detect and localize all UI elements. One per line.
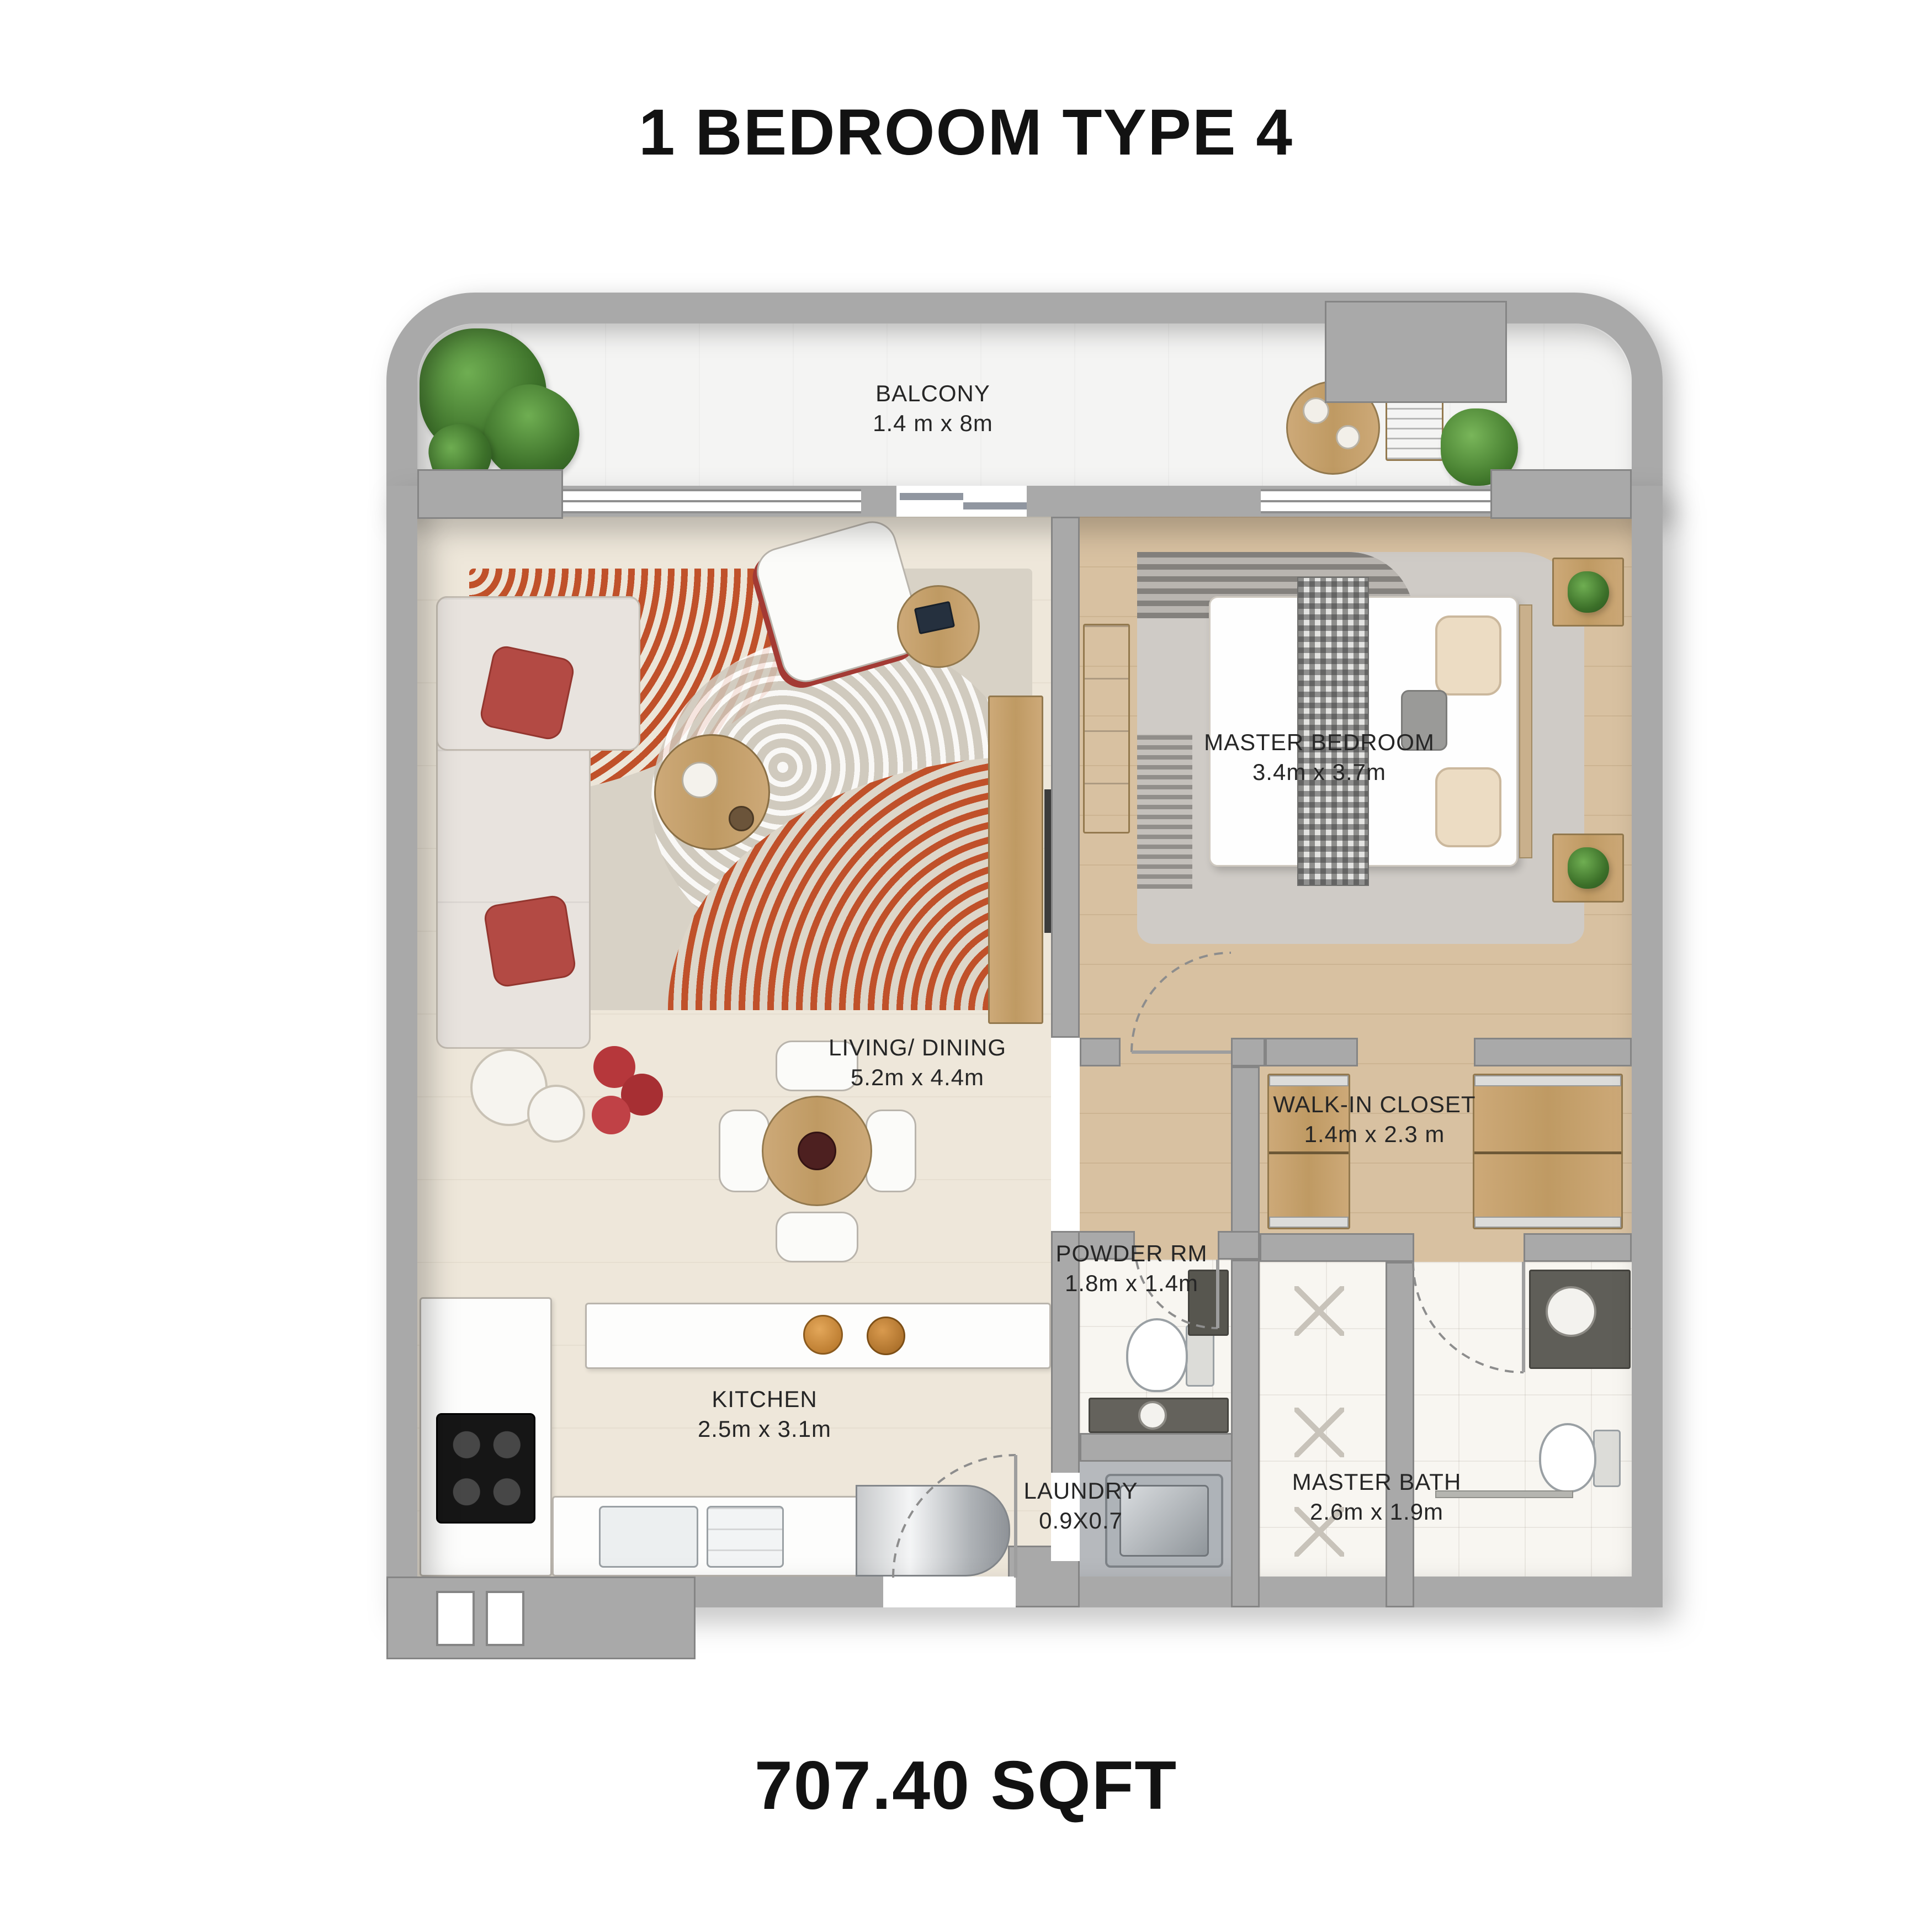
living-dining-label: LIVING/ DINING 5.2m x 4.4m (829, 1033, 1006, 1092)
apartment-outer-wall (386, 486, 1663, 1607)
wall-bedroom-closet (1474, 1038, 1632, 1066)
powder-room-label: POWDER RM 1.8m x 1.4m (1056, 1239, 1208, 1298)
balcony-name: BALCONY (873, 379, 993, 408)
master-bedroom-dims: 3.4m x 3.7m (1204, 757, 1435, 787)
wall-closet-bath (1524, 1233, 1632, 1262)
floor-plan-page: 1 BEDROOM TYPE 4 (0, 0, 1932, 1932)
wall-living-bedroom (1051, 517, 1080, 1038)
wall-bedroom-closet (1265, 1038, 1358, 1066)
powder-room-dims: 1.8m x 1.4m (1056, 1268, 1208, 1298)
bedroom-window (1261, 489, 1490, 513)
balcony-door-opening (896, 486, 1027, 517)
sliding-door-panel (900, 493, 963, 500)
living-dining-name: LIVING/ DINING (829, 1033, 1006, 1063)
wall-powder-north (1218, 1231, 1260, 1260)
kitchen-label: KITCHEN 2.5m x 3.1m (698, 1384, 831, 1444)
window-mullion (563, 500, 861, 502)
wall-bedroom-south (1080, 1038, 1121, 1066)
master-bath-dims: 2.6m x 1.9m (1292, 1497, 1462, 1527)
walk-in-closet-label: WALK-IN CLOSET 1.4m x 2.3 m (1273, 1090, 1475, 1149)
living-dining-dims: 5.2m x 4.4m (829, 1063, 1006, 1092)
master-bedroom-label: MASTER BEDROOM 3.4m x 3.7m (1204, 728, 1435, 787)
kitchen-dims: 2.5m x 3.1m (698, 1414, 831, 1444)
balcony-dims: 1.4 m x 8m (873, 408, 993, 438)
powder-room-name: POWDER RM (1056, 1239, 1208, 1268)
wall-pillar (1325, 301, 1507, 403)
laundry-name: LAUNDRY (1024, 1476, 1138, 1506)
entrance-opening (883, 1577, 1016, 1607)
wall-pillar (1490, 469, 1632, 519)
service-shaft (436, 1591, 475, 1646)
kitchen-name: KITCHEN (698, 1384, 831, 1414)
walk-in-closet-name: WALK-IN CLOSET (1273, 1090, 1475, 1119)
master-bath-label: MASTER BATH 2.6m x 1.9m (1292, 1467, 1462, 1527)
walk-in-closet-dims: 1.4m x 2.3 m (1273, 1119, 1475, 1149)
wall-closet-bath (1260, 1233, 1414, 1262)
sliding-door-panel (963, 502, 1027, 509)
wall-service-chase (386, 1577, 696, 1659)
master-bath-name: MASTER BATH (1292, 1467, 1462, 1497)
wall-shower-west (1231, 1260, 1260, 1607)
wall-shower-bath (1386, 1262, 1414, 1607)
window-mullion (1261, 500, 1490, 502)
total-area-label: 707.40 SQFT (755, 1747, 1177, 1825)
wall-bedroom-south (1231, 1038, 1265, 1066)
wall-pillar (417, 469, 563, 519)
living-window (563, 489, 861, 513)
balcony-label: BALCONY 1.4 m x 8m (873, 379, 993, 438)
page-title: 1 BEDROOM TYPE 4 (639, 95, 1293, 170)
master-bedroom-name: MASTER BEDROOM (1204, 728, 1435, 757)
laundry-label: LAUNDRY 0.9X0.7 (1024, 1476, 1138, 1536)
service-shaft (486, 1591, 524, 1646)
laundry-dims: 0.9X0.7 (1024, 1506, 1138, 1536)
